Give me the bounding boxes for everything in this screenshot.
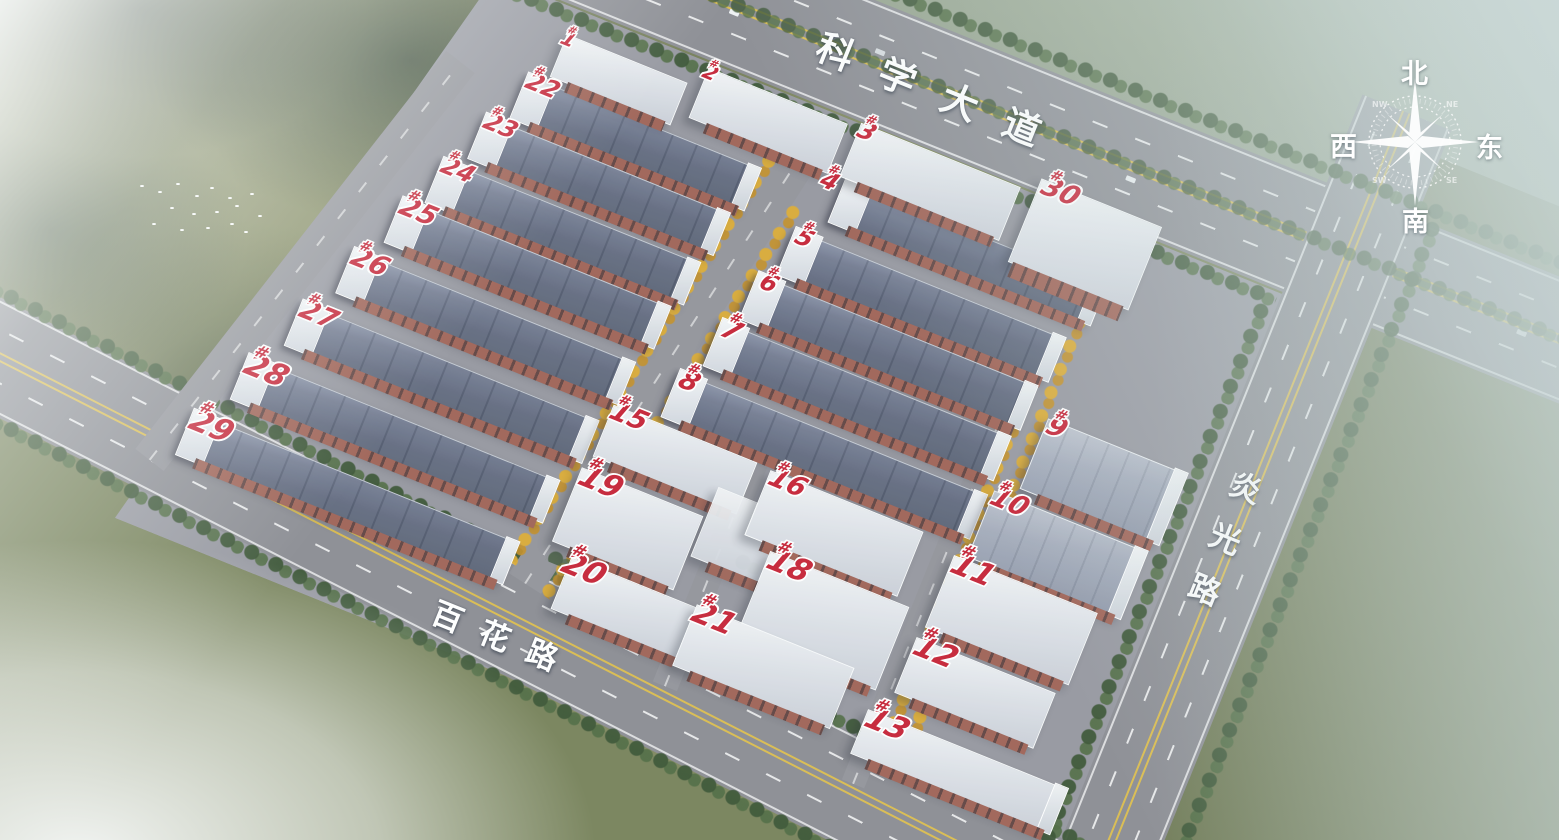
compass-nw-label: NW (1372, 100, 1388, 109)
compass-ne-label: NE (1446, 100, 1458, 109)
compass-east-label: 东 (1476, 126, 1503, 165)
compass-west-label: 西 (1330, 125, 1357, 164)
compass-north-label: 北 (1401, 52, 1428, 91)
site-plan: 1# 2# 3# 4# 5# 6# 7# 8# 9# 10# 11# 12# 1… (0, 0, 1559, 840)
compass-se-label: SE (1446, 176, 1457, 185)
bird-flock (140, 185, 144, 187)
aerial-masterplan: 1# 2# 3# 4# 5# 6# 7# 8# 9# 10# 11# 12# 1… (0, 0, 1559, 840)
compass-south-label: 南 (1402, 200, 1429, 239)
compass: 北 南 东 西 NW NE SE SW (1330, 52, 1500, 232)
compass-sw-label: SW (1372, 176, 1387, 185)
